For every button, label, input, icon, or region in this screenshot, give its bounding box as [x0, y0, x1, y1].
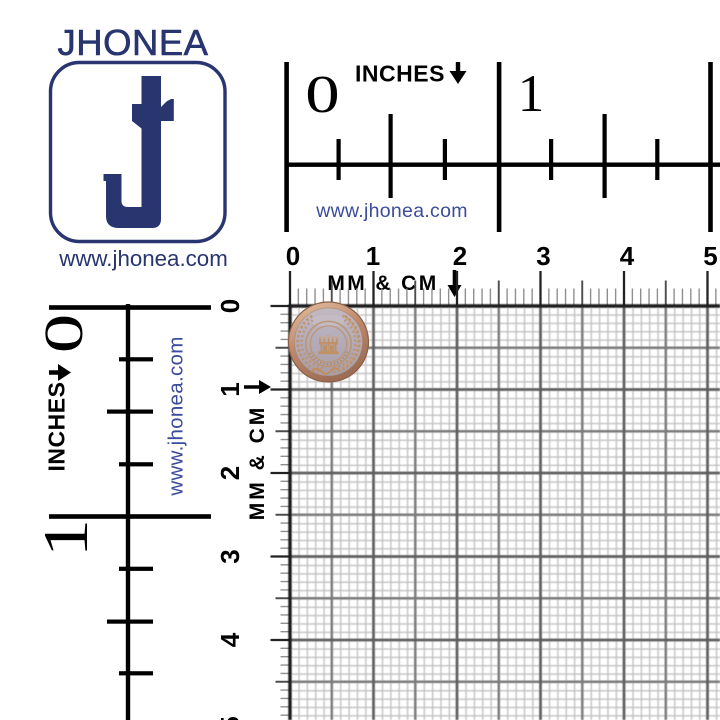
svg-text:INCHES: INCHES	[355, 61, 445, 87]
svg-text:MM & CM: MM & CM	[246, 405, 269, 520]
svg-text:5: 5	[215, 716, 245, 720]
svg-text:INCHES: INCHES	[44, 382, 70, 472]
svg-text:1: 1	[31, 519, 102, 557]
svg-text:1: 1	[366, 241, 380, 271]
svg-text:www.jhonea.com: www.jhonea.com	[315, 200, 468, 222]
svg-text:JHONEA: JHONEA	[57, 22, 208, 63]
svg-text:0: 0	[215, 299, 245, 313]
svg-text:1: 1	[518, 65, 545, 123]
svg-text:2: 2	[453, 241, 467, 271]
svg-text:4: 4	[215, 632, 245, 647]
svg-text:0: 0	[33, 314, 94, 354]
svg-text:www.jhonea.com: www.jhonea.com	[58, 246, 228, 271]
svg-text:2: 2	[215, 466, 245, 480]
svg-text:0: 0	[286, 241, 300, 271]
svg-text:www.jhonea.com: www.jhonea.com	[165, 336, 188, 496]
svg-text:0: 0	[305, 65, 339, 124]
svg-text:MM & CM: MM & CM	[327, 272, 438, 295]
svg-text:4: 4	[620, 241, 635, 271]
svg-text:3: 3	[536, 241, 550, 271]
svg-text:3: 3	[215, 549, 245, 563]
svg-text:1: 1	[215, 382, 245, 396]
svg-text:5: 5	[703, 241, 717, 271]
